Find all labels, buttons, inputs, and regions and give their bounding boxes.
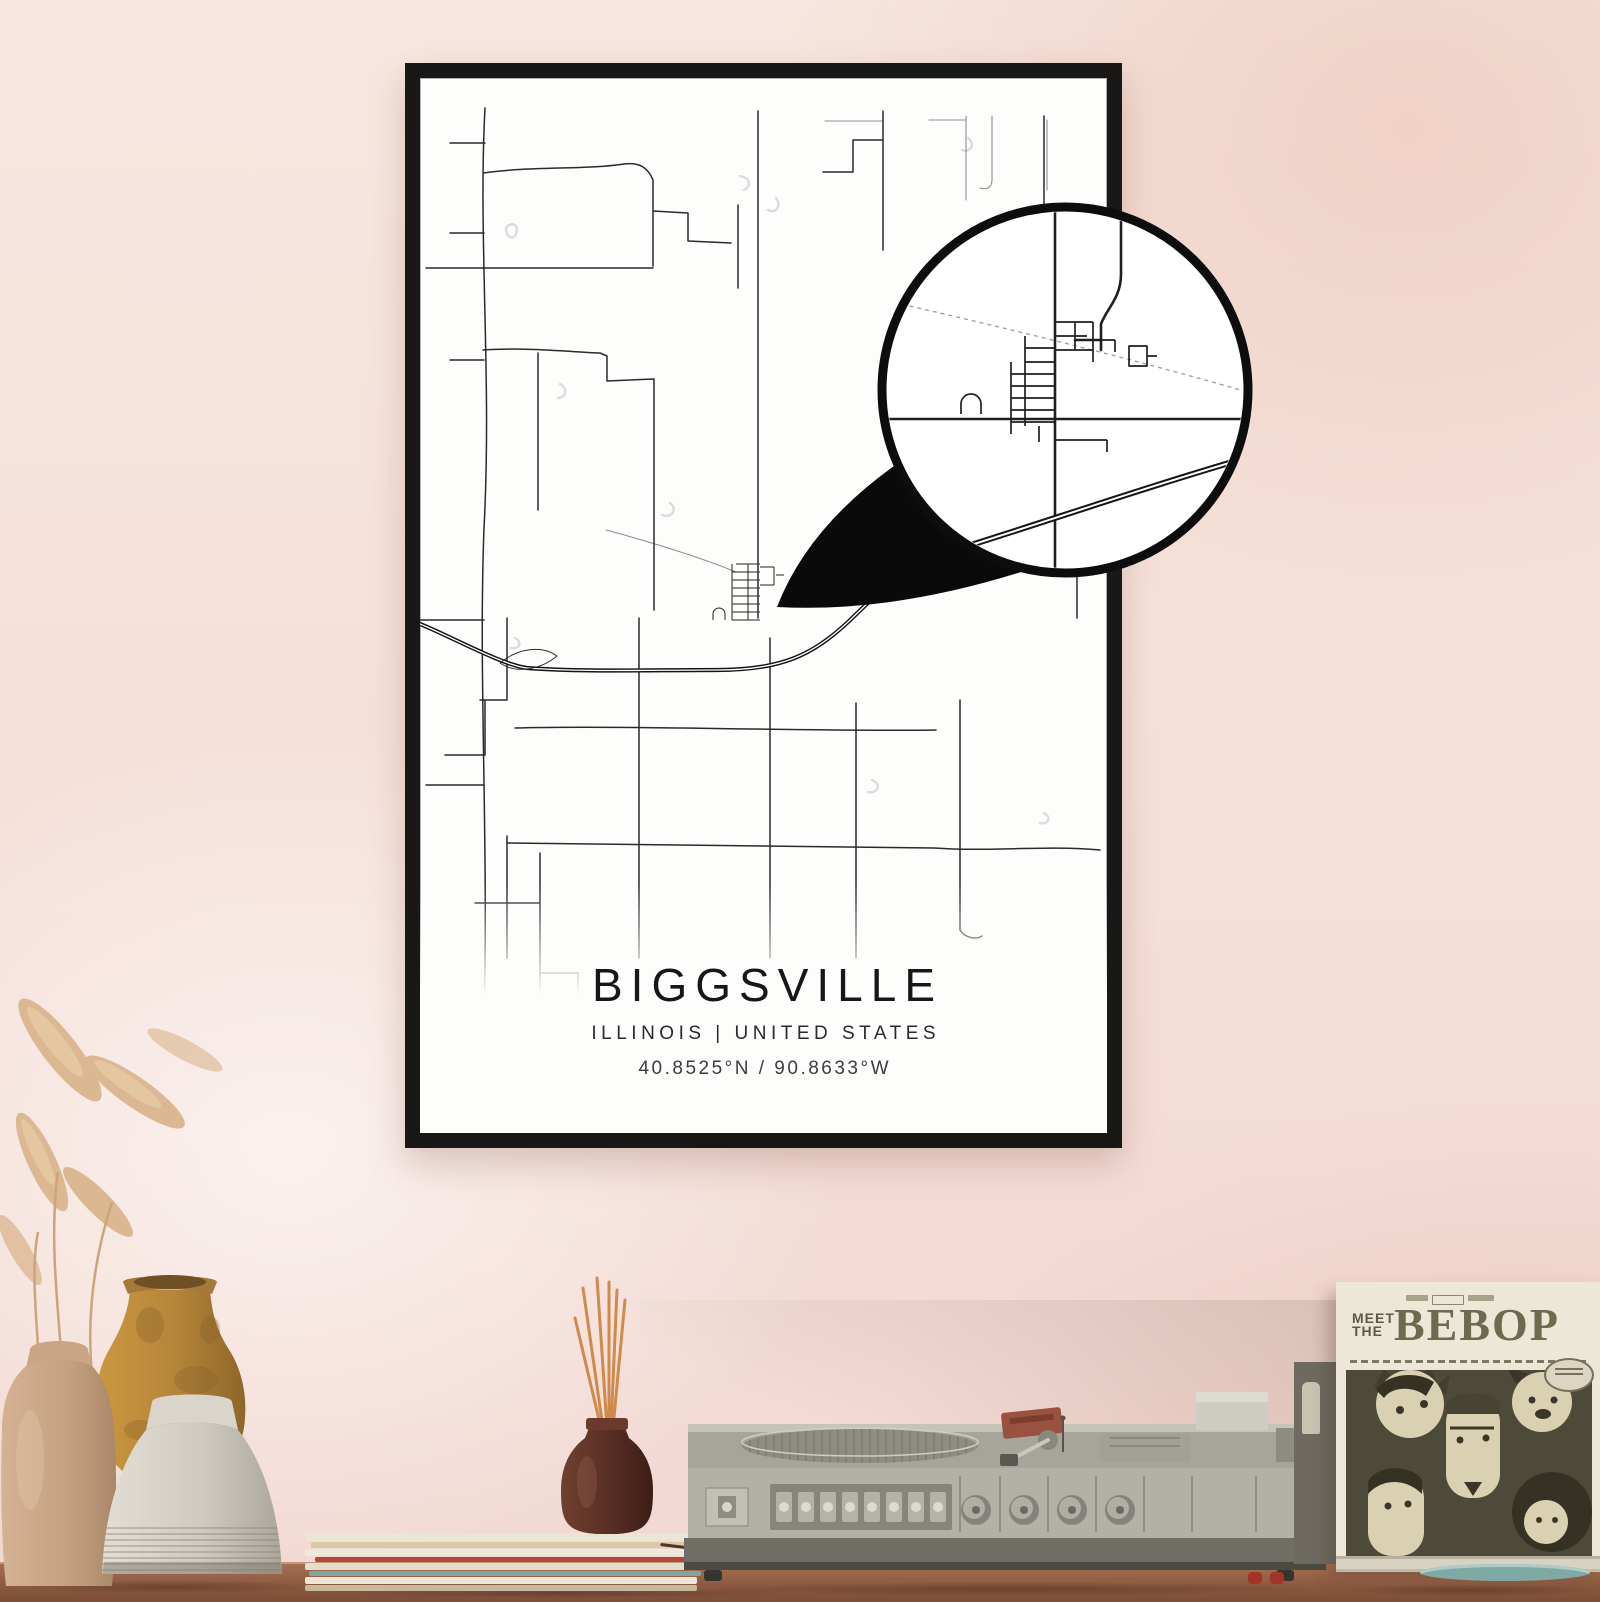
record-gap [1294,1362,1338,1564]
magazine [311,1542,703,1548]
vase-group [0,1230,310,1600]
poster-subtitle: ILLINOIS | UNITED STATES [420,1023,1112,1045]
magazine [315,1557,707,1562]
diffuser-highlight [577,1456,597,1508]
sleeve-title-bebop: BEBOP [1394,1298,1560,1351]
sleeve-label-logo [1544,1358,1594,1392]
magazine [305,1577,697,1584]
sleeve-characters [1368,1370,1592,1556]
sleeve-title-meet-the: MEET THE [1352,1312,1395,1339]
diffuser-lip [586,1418,628,1430]
record-player [680,1380,1330,1602]
reed-diffuser [545,1270,680,1538]
player-button-row [770,1484,952,1530]
player-knob [1009,1495,1039,1525]
player-power-button [706,1488,748,1526]
shadow-sleeve [1340,1584,1600,1596]
incense-sticks [575,1278,625,1428]
poster-coordinates: 40.8525°N / 90.8633°W [420,1058,1110,1080]
magazine [305,1563,697,1570]
player-knob [961,1495,991,1525]
tonearm-head [1000,1454,1018,1466]
player-knob [1105,1495,1135,1525]
player-foot [704,1570,722,1581]
record-sleeve: MEET THE BEBOP [1336,1282,1600,1566]
record-gap-detail [1302,1382,1320,1434]
poster-title: BIGGSVILLE [420,958,1115,1012]
diffuser-bottle [561,1428,653,1534]
magnifier-callout [755,188,1275,628]
red-knob [1248,1572,1262,1584]
magazine [305,1549,697,1556]
magazine-stack [305,1532,697,1596]
player-plinth-shadow [684,1562,1326,1570]
red-knob [1270,1572,1284,1584]
teal-record [1420,1564,1590,1581]
magazine [309,1571,701,1576]
sleeve-artwork [1346,1370,1592,1556]
magazine [305,1585,697,1591]
sleeve-word-the: THE [1352,1325,1395,1338]
poster-caption: BIGGSVILLE ILLINOIS | UNITED STATES 40.8… [420,958,1107,1080]
player-knob [1057,1495,1087,1525]
vase-tan [1,1341,116,1586]
